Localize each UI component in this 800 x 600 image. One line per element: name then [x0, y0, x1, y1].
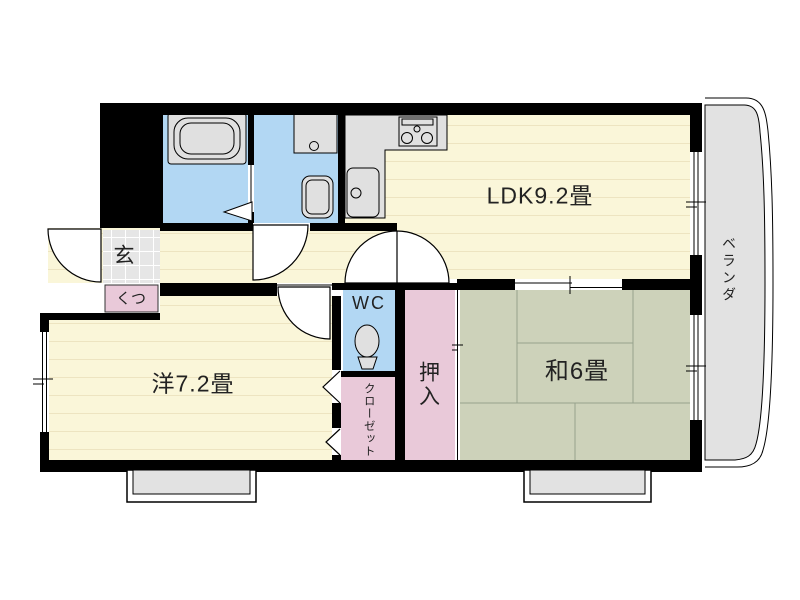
ldk-label: LDK9.2畳 [487, 185, 594, 208]
closet-label: クローゼット [362, 383, 374, 458]
bathtub [168, 113, 246, 164]
washing-machine-pan [294, 112, 337, 153]
oshiire-label: 押入 [418, 361, 439, 409]
shoe-cabinet-label: くつ [116, 292, 146, 307]
washbasin [302, 176, 333, 218]
genkan-label: 玄 [114, 246, 135, 267]
bay-window-western [127, 470, 256, 502]
western-room-label: 洋7.2畳 [152, 373, 235, 396]
floor-plan: LDK9.2畳 洋7.2畳 和6畳 WC 玄 くつ 押入 クローゼット ベランダ [0, 0, 800, 600]
stove [399, 117, 437, 146]
dead-space-block [100, 103, 163, 228]
bay-window-japanese [524, 470, 651, 502]
kitchen-sink [347, 168, 379, 217]
wc-label: WC [352, 294, 386, 312]
japanese-room-label: 和6畳 [545, 360, 609, 384]
veranda-label: ベランダ [722, 236, 736, 304]
veranda [705, 98, 773, 467]
